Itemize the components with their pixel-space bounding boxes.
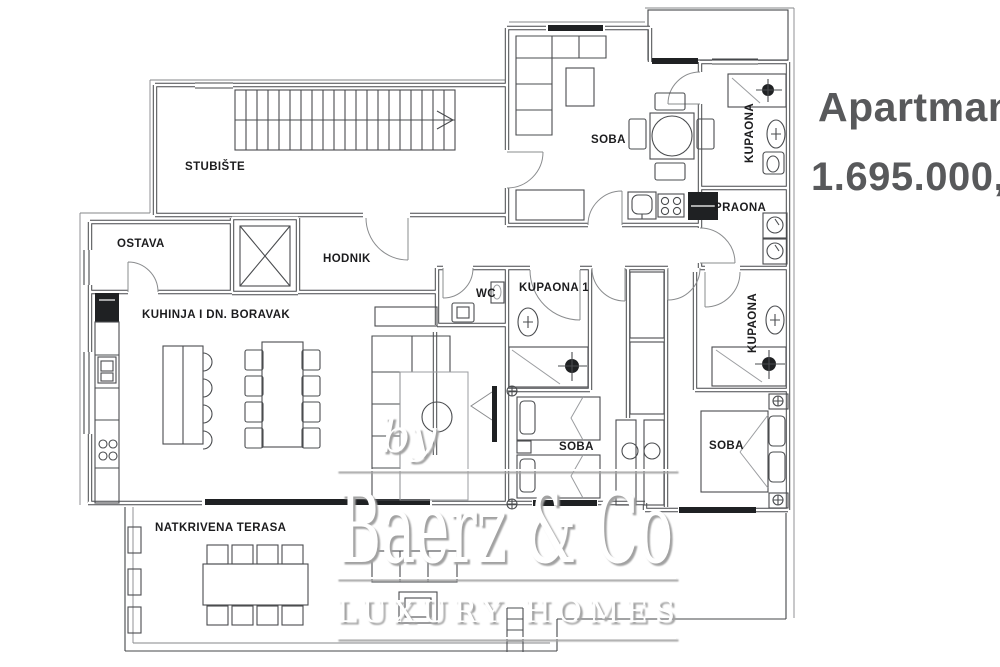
watermark-face: by Baerz & Co LUXURY HOMES xyxy=(336,409,676,638)
listing-price: 1.695.000,00 xyxy=(811,155,1000,200)
listing-title: Apartman xyxy=(818,84,1000,131)
watermark-by: by xyxy=(381,409,437,463)
floorplan-page: STUBIŠTE OSTAVA HODNIK KUHINJA I DN. BOR… xyxy=(0,0,1000,667)
watermark-brand: Baerz & Co xyxy=(339,473,673,585)
